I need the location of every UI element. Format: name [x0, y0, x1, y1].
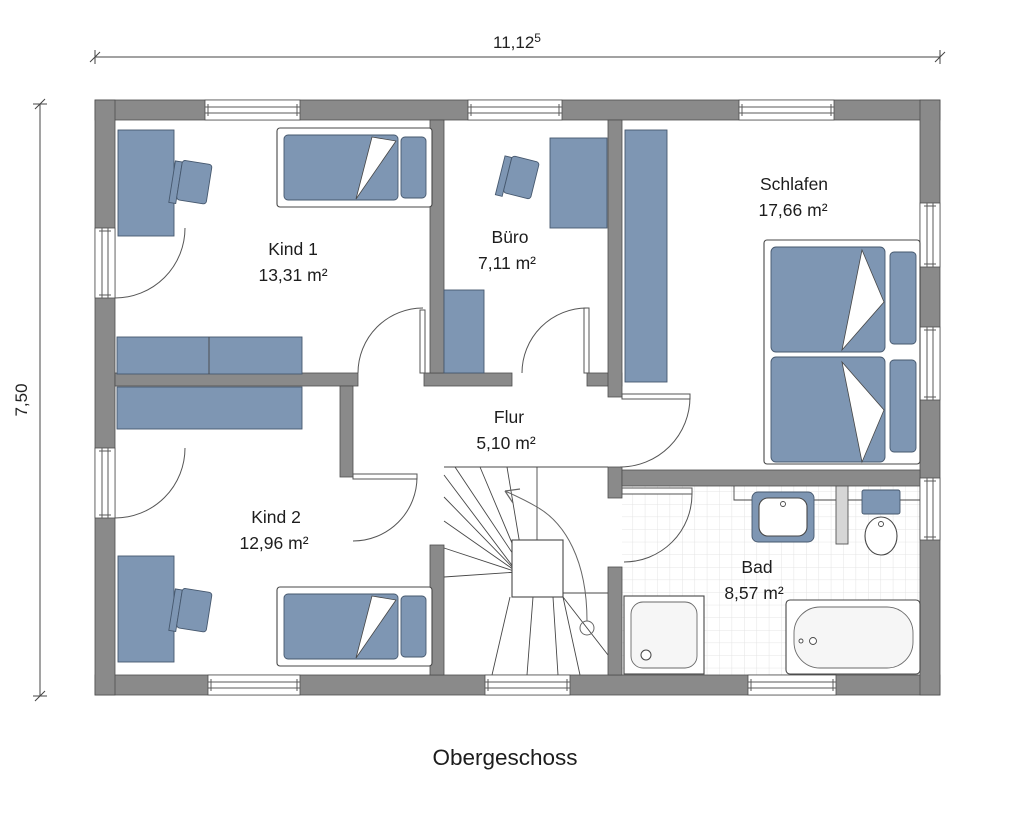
desk-kind1 [118, 130, 174, 236]
bed-kind1 [277, 128, 432, 207]
dimension-top: 11,125 [90, 31, 945, 64]
label-buero-area: 7,11 m² [478, 253, 536, 273]
dimension-left: 7,50 [12, 99, 47, 701]
door-schlafen [620, 394, 690, 467]
window-stairs-bottom [485, 675, 570, 695]
window-kind2-bottom [208, 675, 300, 695]
label-flur-area: 5,10 m² [476, 433, 535, 453]
stair-newel [512, 540, 563, 597]
bed-kind2 [277, 587, 432, 666]
door-buero [522, 308, 589, 373]
wall-buero-schlafen [608, 120, 622, 397]
label-bad-area: 8,57 m² [724, 583, 783, 603]
label-schlafen-name: Schlafen [760, 174, 828, 194]
shower-drain [641, 650, 651, 660]
bathtub-drain [799, 639, 803, 643]
wall-outer-left [95, 100, 115, 695]
wall-schlafen-bad [622, 470, 920, 486]
bed-kind2-pillow [401, 596, 426, 657]
window-kind1-left-swing-arc [115, 228, 185, 298]
window-bad-right [920, 478, 940, 540]
window-bad-bottom [748, 675, 836, 695]
bed-kind1-pillow [401, 137, 426, 198]
window-kind2-left-swing-arc [115, 448, 185, 518]
label-flur-name: Flur [494, 407, 524, 427]
toilet-tank [862, 490, 900, 514]
bed-double-schlafen [764, 240, 920, 464]
staircase [444, 467, 608, 675]
bed-double-pillow-2 [890, 360, 916, 452]
label-bad-name: Bad [741, 557, 772, 577]
cabinet-kind2 [117, 387, 302, 429]
floor-plan: 11,125 7,50 [0, 0, 1024, 831]
cabinet-kind1 [117, 337, 302, 374]
shower [624, 596, 704, 674]
label-kind2-area: 12,96 m² [239, 533, 308, 553]
window-schlafen-right-1 [920, 203, 940, 267]
label-buero-name: Büro [492, 227, 529, 247]
chair-kind1 [169, 159, 212, 208]
window-kind1-top [205, 100, 300, 120]
wall-stairs-bad [608, 567, 622, 675]
window-schlafen-right-2 [920, 327, 940, 400]
label-kind1-name: Kind 1 [268, 239, 318, 259]
wall-flur-bad-stub [608, 467, 622, 498]
window-kind1-left [95, 228, 185, 298]
window-buero-top [468, 100, 562, 120]
chair-kind2 [169, 587, 212, 636]
bathtub-faucet [810, 638, 817, 645]
shelf-buero [444, 290, 484, 373]
label-kind1-area: 13,31 m² [258, 265, 327, 285]
dimension-left-label: 7,50 [12, 383, 31, 416]
bed-double-pillow-1 [890, 252, 916, 344]
bad-partition-wall [836, 486, 848, 544]
sink [752, 492, 814, 542]
wall-kind2-flur [340, 386, 353, 477]
dimension-top-label: 11,125 [493, 31, 541, 52]
wall-kind1-kind2 [115, 373, 358, 386]
bathtub [786, 600, 920, 674]
label-kind2-name: Kind 2 [251, 507, 301, 527]
wardrobe-schlafen [625, 130, 667, 382]
desk-kind2 [118, 556, 174, 662]
chair-buero [495, 154, 539, 203]
page-title: Obergeschoss [432, 745, 577, 770]
label-schlafen-area: 17,66 m² [758, 200, 827, 220]
wall-flur-north-mid [424, 373, 512, 386]
door-kind1 [358, 308, 425, 373]
window-schlafen-top [739, 100, 834, 120]
sink-faucet [781, 502, 786, 507]
door-kind2 [353, 474, 417, 541]
desk-buero [550, 138, 607, 228]
window-kind2-left [95, 448, 185, 518]
